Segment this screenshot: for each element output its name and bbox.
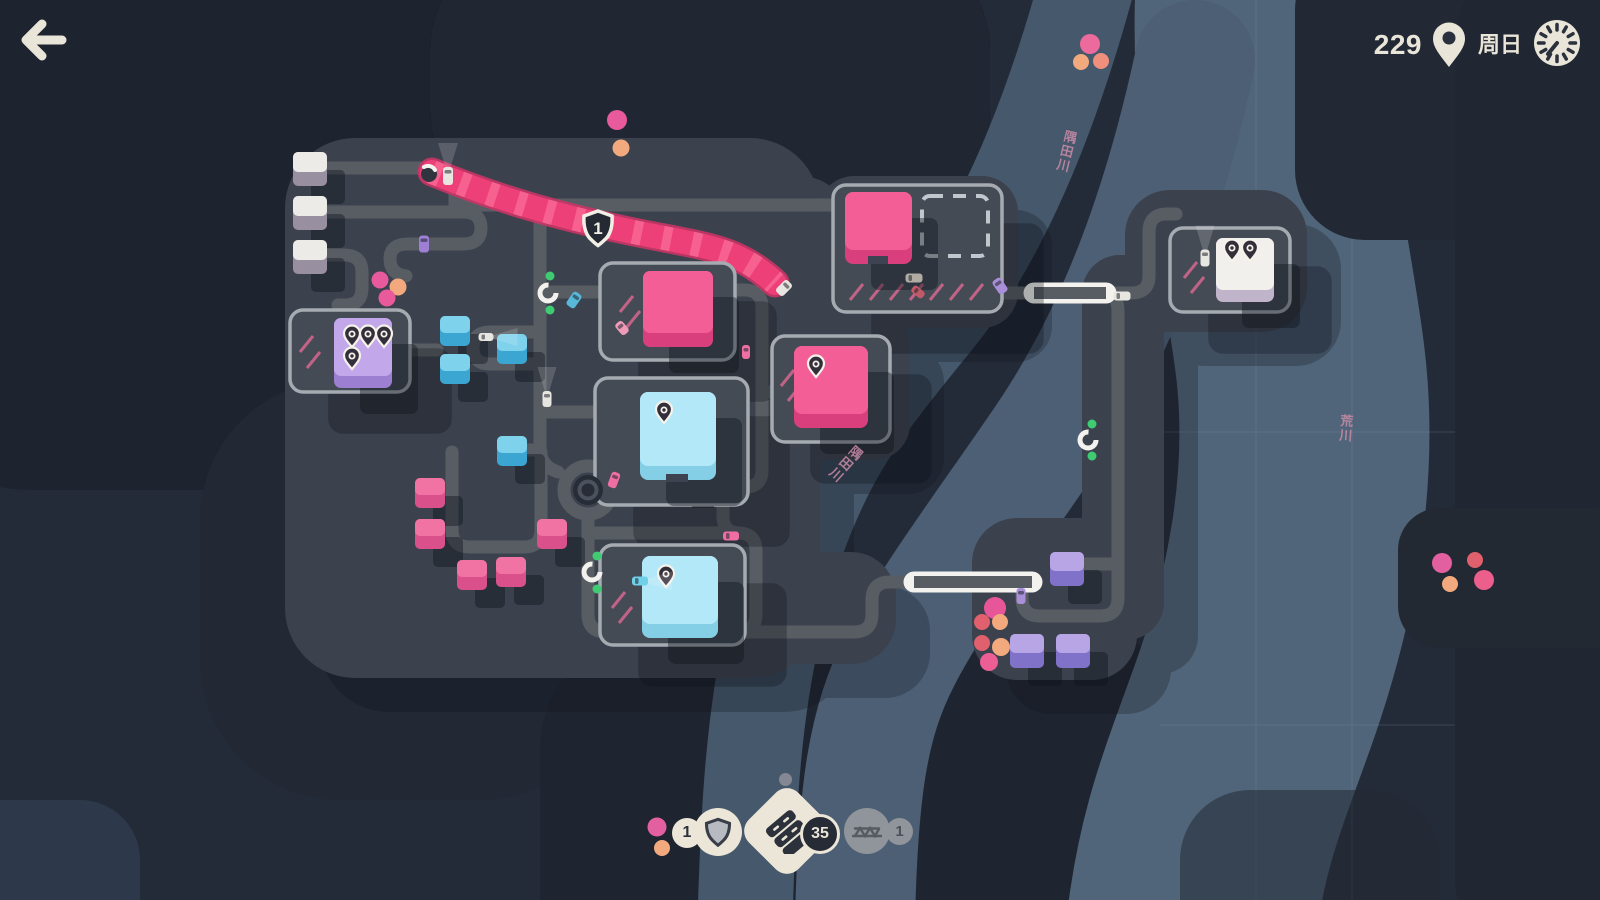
back-arrow-icon	[26, 24, 62, 56]
bridge-pill[interactable]: 1	[844, 808, 924, 856]
car	[742, 345, 750, 359]
building-pink-center[interactable]	[643, 271, 713, 347]
road-tiles-count: 35	[800, 814, 840, 854]
game-screen: 1	[0, 0, 1600, 900]
clock-icon[interactable]	[1532, 18, 1582, 68]
mini-roundabout	[421, 166, 437, 182]
building-pink-right[interactable]	[794, 346, 868, 428]
location-pin-icon	[1430, 22, 1468, 68]
building-cyan-bottom[interactable]	[642, 556, 718, 638]
river-label-arakawa: 荒川	[1338, 413, 1356, 444]
score-label: 229	[1374, 29, 1422, 61]
back-button[interactable]	[18, 16, 70, 64]
building-cyan-mid[interactable]	[640, 392, 716, 482]
car	[906, 274, 923, 283]
motorway-badge-number: 1	[593, 219, 602, 238]
day-label: 周日	[1478, 27, 1522, 59]
score-group: 229	[1374, 22, 1468, 68]
roundabout	[573, 475, 603, 505]
hud-handle-dot[interactable]	[779, 773, 792, 786]
day-clock-group: 周日	[1478, 18, 1582, 68]
car	[1017, 588, 1026, 604]
houses-gray[interactable]	[293, 152, 327, 274]
game-map[interactable]: 1	[0, 0, 1600, 900]
motorway-shield-icon	[704, 817, 732, 847]
car	[1114, 292, 1131, 301]
car	[723, 532, 739, 541]
bridge-icon	[852, 822, 882, 840]
building-pink-top[interactable]	[845, 192, 912, 264]
bridge-count: 1	[886, 818, 913, 845]
car	[419, 236, 429, 253]
